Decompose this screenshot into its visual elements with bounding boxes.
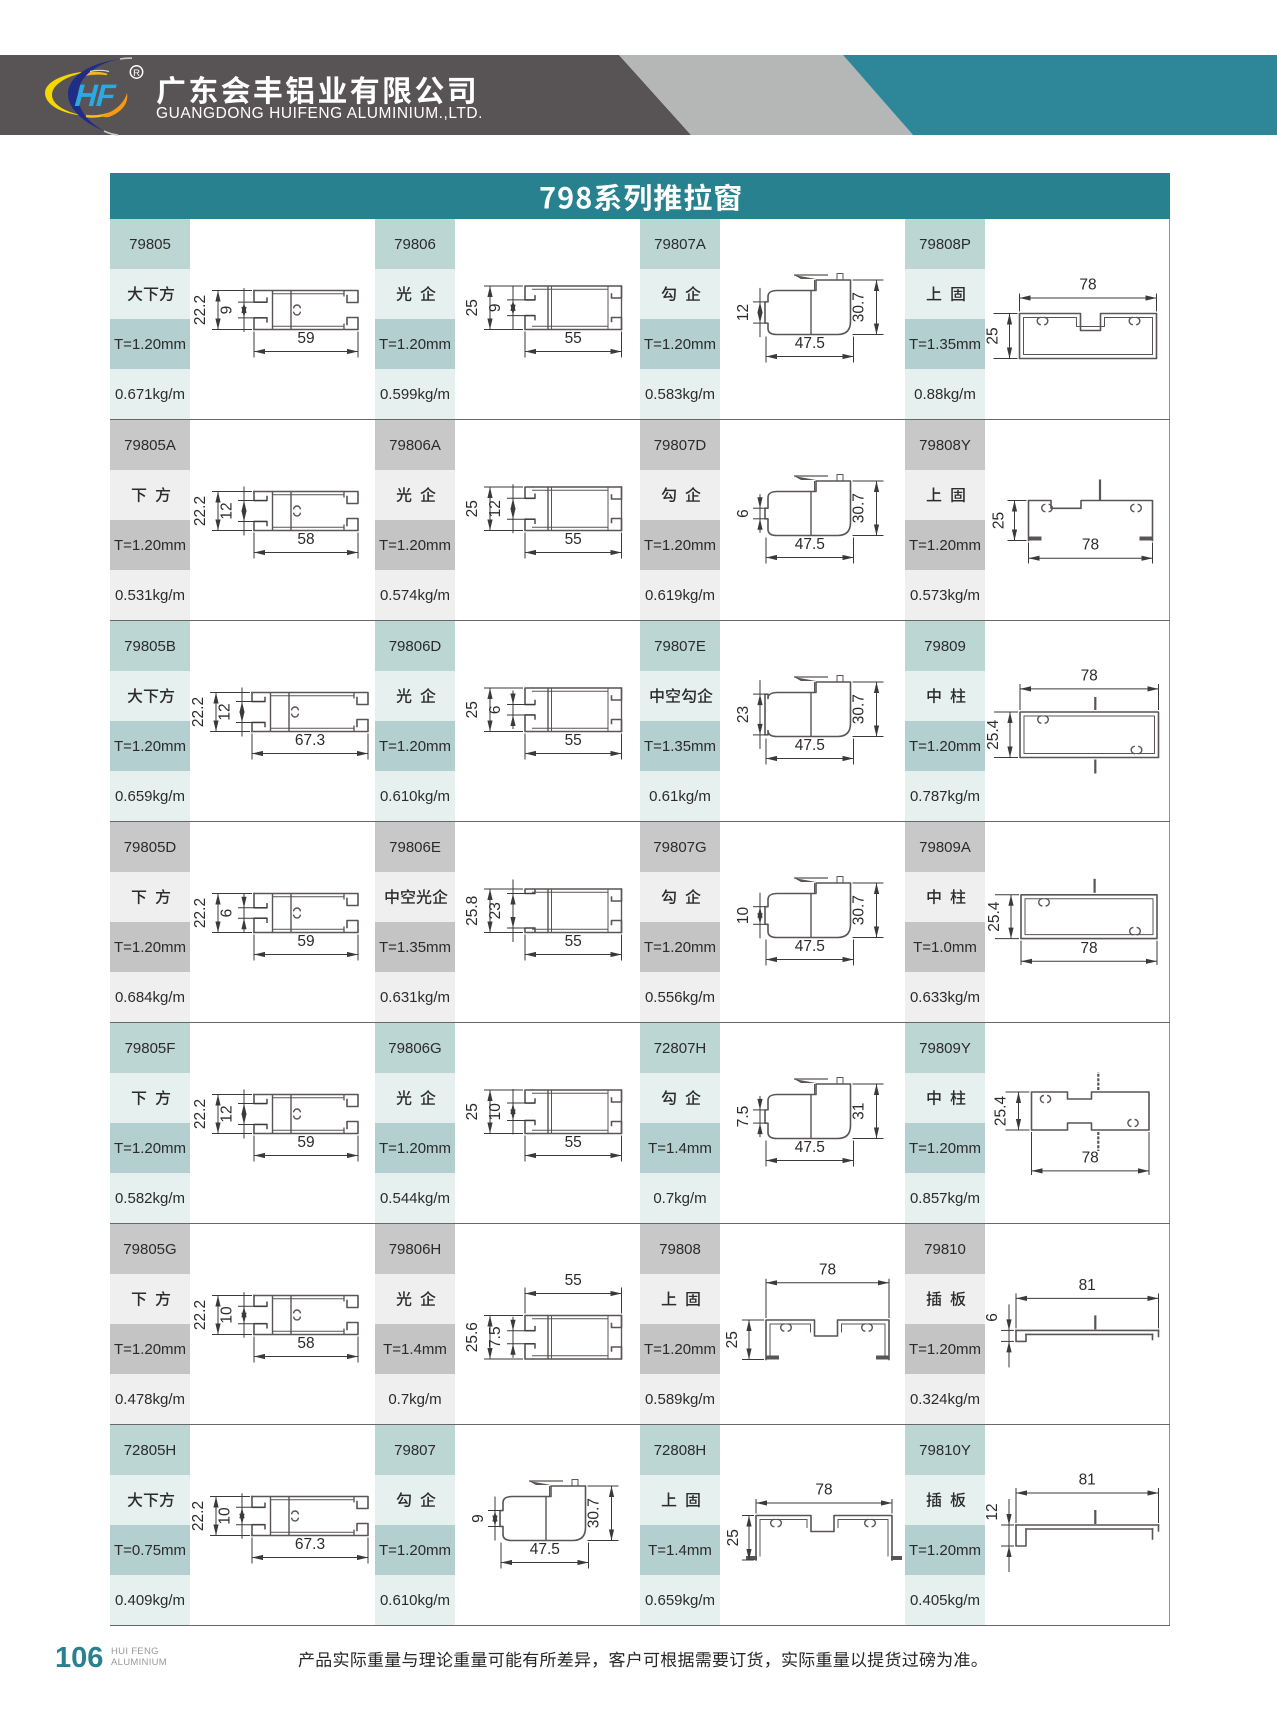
svg-text:78: 78 bbox=[1082, 537, 1099, 554]
svg-text:67.3: 67.3 bbox=[295, 732, 325, 749]
svg-text:59: 59 bbox=[297, 1134, 314, 1151]
svg-text:6: 6 bbox=[487, 705, 504, 714]
svg-text:31: 31 bbox=[851, 1103, 868, 1120]
svg-text:47.5: 47.5 bbox=[530, 1541, 560, 1558]
svg-text:12: 12 bbox=[735, 304, 752, 321]
svg-text:7.5: 7.5 bbox=[735, 1106, 752, 1128]
svg-text:78: 78 bbox=[1080, 940, 1097, 957]
svg-text:78: 78 bbox=[1079, 277, 1096, 294]
svg-text:59: 59 bbox=[297, 933, 314, 950]
svg-text:78: 78 bbox=[1081, 667, 1098, 684]
svg-text:12: 12 bbox=[487, 500, 504, 517]
svg-text:55: 55 bbox=[565, 732, 582, 749]
svg-text:81: 81 bbox=[1079, 1277, 1096, 1294]
svg-text:25: 25 bbox=[464, 500, 481, 517]
svg-text:25.4: 25.4 bbox=[986, 901, 1003, 932]
svg-text:55: 55 bbox=[565, 330, 582, 347]
svg-text:6: 6 bbox=[985, 1313, 1001, 1322]
svg-text:30.7: 30.7 bbox=[851, 292, 868, 322]
svg-text:55: 55 bbox=[565, 1272, 582, 1289]
svg-text:25: 25 bbox=[991, 512, 1008, 529]
svg-text:22.2: 22.2 bbox=[192, 295, 209, 325]
svg-text:10: 10 bbox=[219, 1306, 236, 1324]
svg-text:12: 12 bbox=[219, 502, 236, 519]
svg-text:22.2: 22.2 bbox=[192, 898, 209, 928]
svg-text:10: 10 bbox=[735, 907, 752, 925]
svg-text:55: 55 bbox=[565, 1134, 582, 1151]
svg-text:25.6: 25.6 bbox=[464, 1322, 481, 1352]
svg-text:25: 25 bbox=[464, 701, 481, 718]
svg-text:22.2: 22.2 bbox=[192, 1300, 209, 1330]
svg-text:47.5: 47.5 bbox=[795, 938, 825, 955]
svg-text:22.2: 22.2 bbox=[190, 697, 207, 727]
svg-text:25.8: 25.8 bbox=[464, 896, 481, 926]
svg-text:47.5: 47.5 bbox=[795, 335, 825, 352]
svg-text:9: 9 bbox=[219, 306, 236, 315]
svg-text:81: 81 bbox=[1079, 1472, 1096, 1489]
svg-text:30.7: 30.7 bbox=[586, 1498, 603, 1528]
svg-text:7.5: 7.5 bbox=[487, 1326, 504, 1348]
svg-text:25: 25 bbox=[985, 327, 1002, 344]
svg-text:R: R bbox=[133, 68, 140, 79]
svg-text:59: 59 bbox=[297, 330, 314, 347]
svg-text:25: 25 bbox=[724, 1331, 741, 1348]
svg-text:12: 12 bbox=[217, 703, 234, 720]
svg-text:78: 78 bbox=[815, 1482, 832, 1499]
svg-text:30.7: 30.7 bbox=[851, 694, 868, 724]
svg-text:78: 78 bbox=[819, 1261, 836, 1278]
svg-text:55: 55 bbox=[565, 531, 582, 548]
svg-text:12: 12 bbox=[219, 1105, 236, 1122]
svg-text:30.7: 30.7 bbox=[851, 895, 868, 925]
svg-text:6: 6 bbox=[735, 509, 752, 518]
svg-text:25: 25 bbox=[464, 1103, 481, 1120]
svg-text:25: 25 bbox=[725, 1529, 742, 1546]
svg-text:23: 23 bbox=[735, 706, 752, 723]
svg-text:10: 10 bbox=[217, 1507, 234, 1525]
svg-text:25: 25 bbox=[464, 299, 481, 316]
svg-text:55: 55 bbox=[565, 933, 582, 950]
svg-text:22.2: 22.2 bbox=[190, 1501, 207, 1531]
svg-text:58: 58 bbox=[297, 531, 314, 548]
svg-text:47.5: 47.5 bbox=[795, 1139, 825, 1156]
svg-text:10: 10 bbox=[487, 1103, 504, 1121]
svg-text:58: 58 bbox=[297, 1335, 314, 1352]
svg-text:23: 23 bbox=[487, 902, 504, 919]
svg-text:78: 78 bbox=[1082, 1149, 1099, 1166]
svg-text:22.2: 22.2 bbox=[192, 496, 209, 526]
svg-text:12: 12 bbox=[985, 1503, 1001, 1520]
svg-text:25.4: 25.4 bbox=[993, 1096, 1010, 1127]
svg-text:25.4: 25.4 bbox=[985, 719, 1002, 750]
svg-text:9: 9 bbox=[487, 303, 504, 312]
svg-text:47.5: 47.5 bbox=[795, 536, 825, 553]
svg-text:6: 6 bbox=[219, 909, 236, 918]
svg-text:22.2: 22.2 bbox=[192, 1099, 209, 1129]
svg-text:47.5: 47.5 bbox=[795, 737, 825, 754]
svg-text:67.3: 67.3 bbox=[295, 1536, 325, 1553]
svg-text:HF: HF bbox=[74, 78, 118, 113]
svg-text:30.7: 30.7 bbox=[851, 493, 868, 523]
svg-text:9: 9 bbox=[470, 1514, 487, 1523]
